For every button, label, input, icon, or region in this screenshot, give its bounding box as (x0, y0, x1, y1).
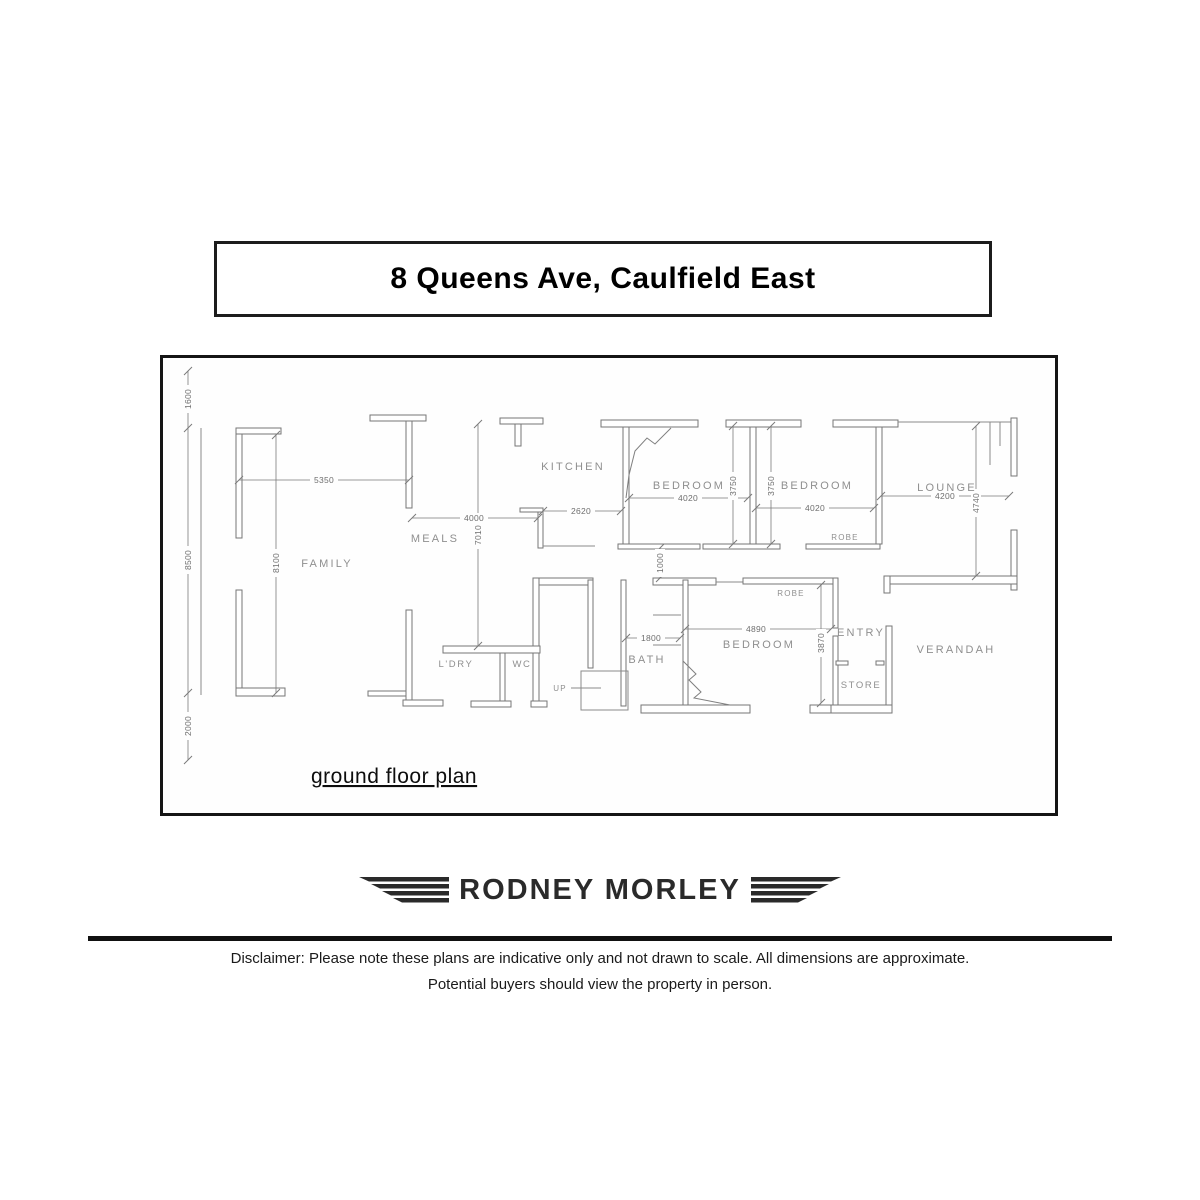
dim-4890: 4890 (746, 624, 766, 634)
disclaimer-line-1: Disclaimer: Please note these plans are … (0, 946, 1200, 972)
dim-3750-b: 3750 (766, 476, 776, 496)
logo-right-wing-icon (751, 877, 841, 905)
room-label-bedroom-2: BEDROOM (781, 480, 853, 492)
room-label-kitchen: KITCHEN (541, 461, 605, 473)
agency-logo-text: RODNEY MORLEY (459, 874, 741, 907)
dim-4740: 4740 (971, 493, 981, 513)
dim-1800: 1800 (641, 633, 661, 643)
dim-5350: 5350 (314, 475, 334, 485)
room-label-robe-1: ROBE (831, 533, 858, 542)
room-label-laundry: L'DRY (439, 659, 474, 670)
dim-2000: 2000 (183, 716, 193, 736)
dim-7010: 7010 (473, 525, 483, 545)
floor-plan-panel: 1600 8500 2000 8100 5350 4000 7010 2620 … (160, 355, 1058, 816)
floor-plan-drawing: 1600 8500 2000 8100 5350 4000 7010 2620 … (163, 358, 1055, 813)
dim-4020-a: 4020 (678, 493, 698, 503)
dim-3870: 3870 (816, 633, 826, 653)
logo-left-wing-icon (359, 877, 449, 905)
dim-8100: 8100 (271, 553, 281, 573)
dim-1600: 1600 (183, 389, 193, 409)
footer-divider (88, 936, 1112, 941)
dim-3750-a: 3750 (728, 476, 738, 496)
dim-1000: 1000 (655, 553, 665, 573)
dim-2620: 2620 (571, 506, 591, 516)
room-label-lounge: LOUNGE (917, 482, 977, 494)
address-title-box: 8 Queens Ave, Caulfield East (214, 241, 992, 317)
room-label-store: STORE (841, 680, 882, 691)
dim-4020-b: 4020 (805, 503, 825, 513)
room-label-wc: WC (512, 659, 531, 670)
room-label-robe-2: ROBE (777, 589, 804, 598)
room-label-family: FAMILY (301, 558, 353, 570)
room-label-meals: MEALS (411, 533, 459, 545)
dim-8500: 8500 (183, 550, 193, 570)
room-label-bedroom-1: BEDROOM (653, 480, 725, 492)
room-label-verandah: VERANDAH (917, 644, 996, 656)
room-label-bedroom-3: BEDROOM (723, 639, 795, 651)
agency-logo: RODNEY MORLEY (0, 874, 1200, 907)
room-label-up: UP (553, 684, 567, 693)
room-label-bath: BATH (628, 654, 665, 666)
disclaimer-line-2: Potential buyers should view the propert… (0, 972, 1200, 998)
room-label-entry: ENTRY (837, 627, 885, 639)
address-title: 8 Queens Ave, Caulfield East (390, 262, 815, 296)
disclaimer: Disclaimer: Please note these plans are … (0, 946, 1200, 998)
plan-caption: ground floor plan (311, 765, 477, 788)
